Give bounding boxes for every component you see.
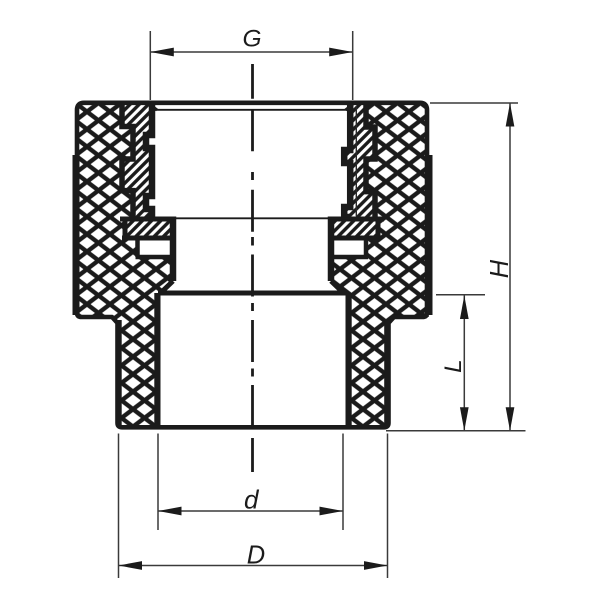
svg-text:d: d (244, 485, 260, 515)
svg-text:L: L (440, 359, 467, 373)
svg-text:G: G (242, 25, 261, 52)
svg-text:H: H (486, 259, 514, 278)
svg-text:D: D (247, 541, 265, 569)
